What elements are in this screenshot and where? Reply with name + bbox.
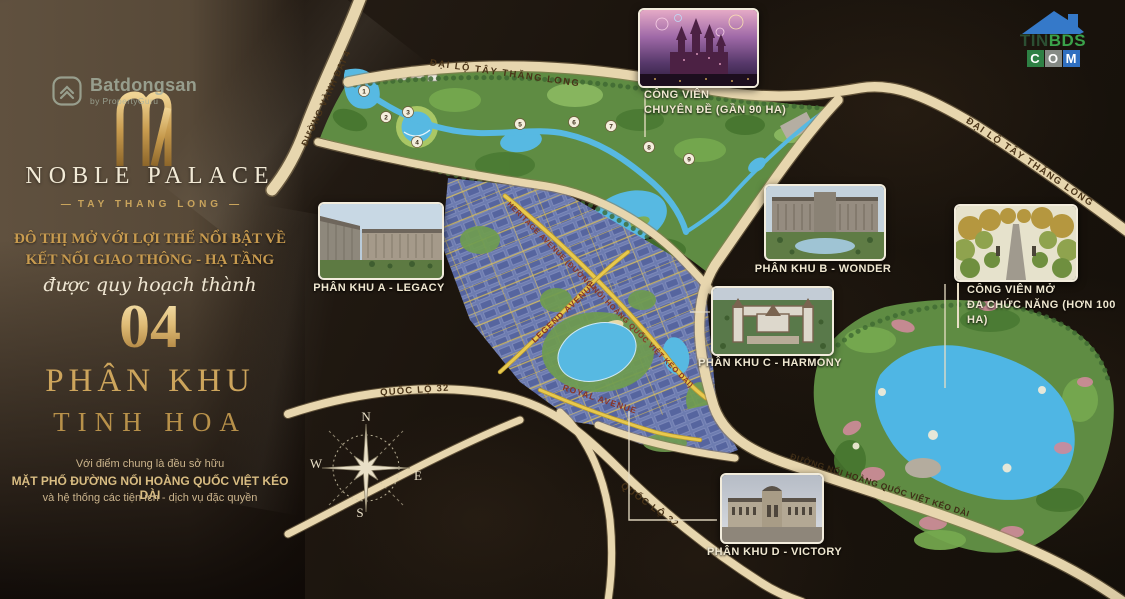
- castle-fireworks-icon: [640, 10, 757, 86]
- compass-w: W: [310, 456, 323, 471]
- batdongsan-name: Batdongsan: [90, 76, 197, 94]
- zone-a-photo: [318, 202, 444, 280]
- tinbds-com: C O M: [1018, 50, 1088, 67]
- tinbds-logo: TINBDS C O M: [1018, 8, 1088, 67]
- tree-alley-icon: [956, 206, 1076, 280]
- batdongsan-house-icon: [52, 76, 82, 106]
- road-label-ql32-west: QUỐC LỘ 32: [380, 382, 450, 399]
- zone-b-photo: [764, 184, 886, 261]
- svg-text:5: 5: [518, 122, 522, 129]
- zone-a-label: PHÂN KHU A - LEGACY: [299, 281, 459, 296]
- open-park-photo: [954, 204, 1078, 282]
- compass-n: N: [361, 409, 371, 424]
- svg-text:1: 1: [362, 89, 366, 96]
- theme-park-label: CÔNG VIÊN CHUYÊN ĐỀ (GẦN 90 HA): [644, 88, 794, 118]
- svg-text:6: 6: [572, 120, 576, 127]
- zone-d-photo: [720, 473, 824, 544]
- tinbds-com-c: C: [1027, 50, 1044, 67]
- compass-s: S: [356, 505, 363, 520]
- zone-c-photo: [711, 286, 834, 356]
- zone-b-label: PHÂN KHU B - WONDER: [743, 262, 903, 277]
- batdongsan-byline: by PropertyGuru: [90, 97, 197, 106]
- road-label-ttl-right: ĐẠI LỘ TÂY THĂNG LONG: [964, 115, 1096, 210]
- svg-text:9: 9: [687, 157, 691, 164]
- theme-park-photo: [638, 8, 759, 88]
- tinbds-com-m: M: [1063, 50, 1080, 67]
- zone-c-label: PHÂN KHU C - HARMONY: [690, 356, 850, 371]
- palace-facade-icon: [722, 475, 822, 542]
- svg-text:2: 2: [384, 115, 388, 122]
- svg-text:7: 7: [609, 124, 613, 131]
- compass-rose: N E S W: [310, 409, 422, 520]
- open-park-label: CÔNG VIÊN MỞ ĐA CHỨC NĂNG (HƠN 100 HA): [957, 283, 1125, 328]
- svg-text:8: 8: [647, 145, 651, 152]
- tinbds-com-o: O: [1045, 50, 1062, 67]
- svg-text:3: 3: [406, 110, 410, 117]
- zone-d-label: PHÂN KHU D - VICTORY: [692, 545, 857, 560]
- castle-aerial-icon: [713, 288, 832, 354]
- compass-e: E: [414, 468, 422, 483]
- tinbds-wordmark: TINBDS: [1018, 32, 1088, 49]
- road-label-ql32-south: QUỐC LỘ 32: [618, 480, 681, 531]
- classic-buildings-icon: [320, 204, 442, 278]
- svg-text:4: 4: [415, 140, 419, 147]
- poster: NOBLE PALACE —TAY THANG LONG— ĐÔ THỊ MỞ …: [0, 0, 1125, 599]
- palace-garden-icon: [766, 186, 884, 259]
- batdongsan-watermark: Batdongsan by PropertyGuru: [52, 76, 197, 106]
